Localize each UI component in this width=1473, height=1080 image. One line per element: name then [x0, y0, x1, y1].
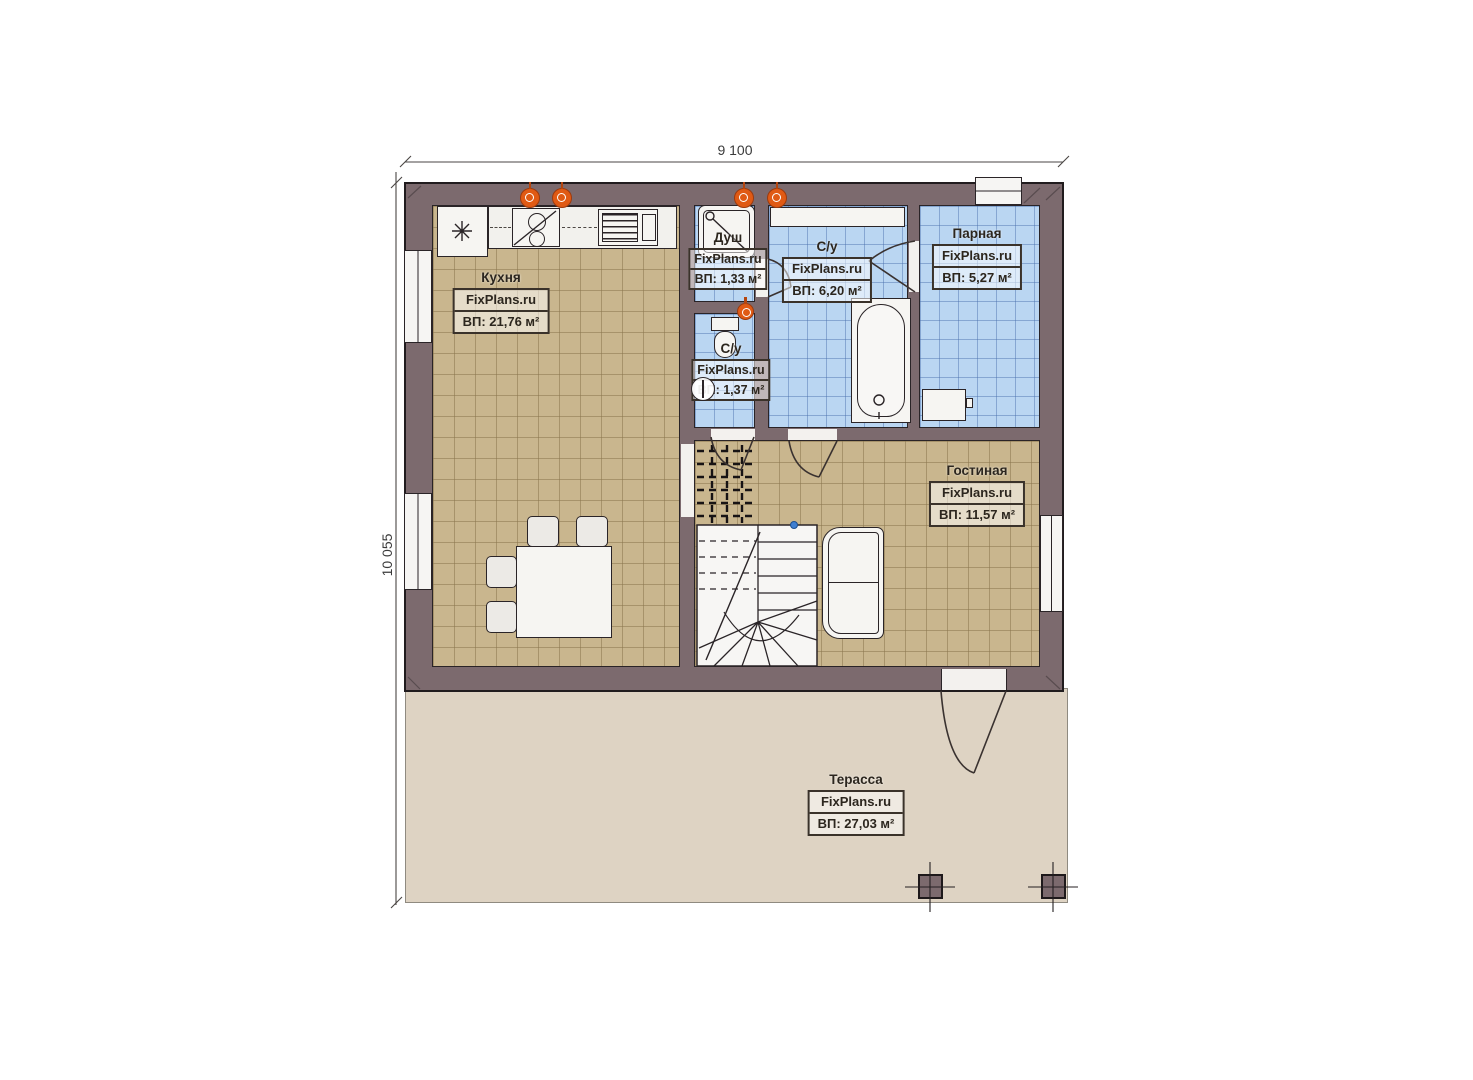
chair [486, 601, 517, 633]
washbasin [691, 377, 715, 401]
bench-step [966, 398, 973, 408]
room-title: С/у [691, 341, 770, 356]
window [404, 493, 432, 590]
room-info-box: FixPlans.ru ВП: 1,33 м² [688, 248, 767, 290]
plumbing-riser-icon [520, 188, 540, 208]
terrace-door-opening [941, 669, 1007, 690]
room-label-kitchen: Кухня FixPlans.ru ВП: 21,76 м² [453, 270, 550, 334]
room-title: С/у [782, 239, 872, 254]
watermark: FixPlans.ru [931, 483, 1023, 503]
room-info-box: FixPlans.ru ВП: 5,27 м² [932, 244, 1022, 290]
watermark: FixPlans.ru [934, 246, 1020, 266]
bathtub-basin [857, 304, 905, 417]
kitchen-doorway [681, 444, 694, 517]
terrace-deck [405, 688, 1068, 903]
watermark: FixPlans.ru [455, 290, 548, 310]
room-title: Парная [932, 226, 1022, 241]
sink-bowl [529, 231, 545, 247]
room-area: ВП: 11,57 м² [931, 503, 1023, 525]
wc-door-opening [711, 429, 755, 440]
counter-centerline [562, 227, 597, 228]
room-label-shower: Душ FixPlans.ru ВП: 1,33 м² [688, 230, 767, 290]
toilet-tank [711, 317, 739, 331]
room-info-box: FixPlans.ru ВП: 11,57 м² [929, 481, 1025, 527]
window [404, 250, 432, 343]
steam-room-bench [922, 389, 966, 421]
room-title: Гостиная [929, 463, 1025, 478]
terrace-column [918, 874, 943, 899]
fridge [437, 206, 488, 257]
room-label-bathroom: С/у FixPlans.ru ВП: 6,20 м² [782, 239, 872, 303]
room-area: ВП: 1,33 м² [690, 268, 765, 288]
watermark: FixPlans.ru [690, 250, 765, 268]
sofa-divider [829, 582, 878, 583]
room-area: ВП: 27,03 м² [810, 812, 903, 834]
dishwasher-panel [642, 214, 656, 241]
room-label-steam-room: Парная FixPlans.ru ВП: 5,27 м² [932, 226, 1022, 290]
plumbing-riser-icon [734, 188, 754, 208]
room-info-box: FixPlans.ru ВП: 27,03 м² [808, 790, 905, 836]
plumbing-riser-icon [767, 188, 787, 208]
room-area: ВП: 6,20 м² [784, 279, 870, 301]
sink-bowl [528, 213, 546, 231]
watermark: FixPlans.ru [810, 792, 903, 812]
dining-table [516, 546, 612, 638]
chair [486, 556, 517, 588]
sofa-cushions [828, 532, 879, 634]
plumbing-riser-icon [552, 188, 572, 208]
watermark: FixPlans.ru [784, 259, 870, 279]
chair [576, 516, 608, 547]
dimension-height-label: 10 055 [379, 520, 395, 590]
window [975, 177, 1022, 205]
room-label-terrace: Терасса FixPlans.ru ВП: 27,03 м² [808, 772, 905, 836]
plumbing-riser-icon [737, 303, 754, 320]
steam-room-door-opening [909, 241, 919, 292]
floor-plan: 9 100 10 055 [0, 0, 1473, 1080]
chair [527, 516, 559, 547]
room-title: Кухня [453, 270, 550, 285]
room-area: ВП: 21,76 м² [455, 310, 548, 332]
counter-centerline [490, 227, 511, 228]
window [1040, 515, 1063, 612]
room-info-box: FixPlans.ru ВП: 21,76 м² [453, 288, 550, 334]
terrace-column [1041, 874, 1066, 899]
bath-shelf [770, 207, 905, 227]
room-title: Терасса [808, 772, 905, 787]
dimension-width-label: 9 100 [700, 142, 770, 158]
room-info-box: FixPlans.ru ВП: 6,20 м² [782, 257, 872, 303]
dishwasher-vents [602, 213, 638, 242]
room-area: ВП: 5,27 м² [934, 266, 1020, 288]
room-label-living-room: Гостиная FixPlans.ru ВП: 11,57 м² [929, 463, 1025, 527]
room-title: Душ [688, 230, 767, 245]
bathroom-door-opening [788, 429, 837, 440]
